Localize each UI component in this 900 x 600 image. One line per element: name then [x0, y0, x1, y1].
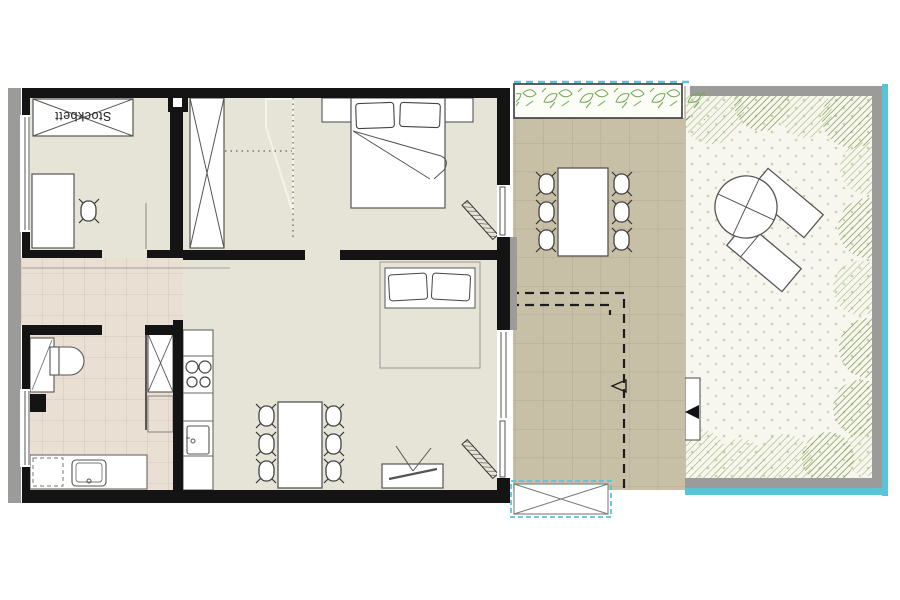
nightstand [322, 98, 351, 122]
chair-icon [256, 432, 276, 456]
garden-wall-bottom [685, 478, 882, 488]
boundary-line-bottom [685, 488, 888, 495]
storage-box [511, 481, 611, 517]
chair-icon [256, 404, 276, 428]
wall-right [497, 88, 510, 185]
double-bed [351, 98, 446, 208]
terrace-door-living [497, 420, 510, 478]
floor-plan-screenshot: Stockbett [0, 0, 900, 600]
wall-bath-living [173, 320, 183, 490]
washer-slot [33, 458, 63, 486]
nightstand [445, 98, 473, 122]
sofa-cushion [388, 273, 427, 301]
facade-trim-right [510, 237, 517, 330]
wall-left [22, 88, 30, 115]
dining-set [256, 402, 344, 488]
facade-trim-left [8, 88, 21, 503]
sofa-cushion [431, 273, 470, 301]
toilet [50, 347, 84, 375]
garden-wall-top [690, 86, 882, 96]
chair-icon [536, 200, 556, 224]
chair-icon [324, 404, 344, 428]
shaft-opening [173, 98, 182, 107]
chair-icon [612, 228, 632, 252]
dining-table [278, 402, 322, 488]
terrace-door-bedroom [497, 185, 510, 237]
wash-basin [72, 460, 106, 486]
desk [32, 174, 74, 248]
window-kids-room [20, 115, 30, 232]
apartment: Stockbett [8, 88, 517, 503]
kitchen [183, 330, 213, 490]
chair-icon [612, 172, 632, 196]
kitchen-counter [183, 330, 213, 490]
vanity [30, 455, 147, 489]
chair-icon [536, 228, 556, 252]
wall-bottom [22, 490, 510, 503]
terrace-area [510, 84, 705, 517]
chair-icon [324, 432, 344, 456]
bunk-bed: Stockbett [33, 99, 133, 136]
chair-icon [79, 199, 99, 223]
window-bathroom [20, 389, 30, 467]
chair-icon [612, 200, 632, 224]
chair-icon [324, 459, 344, 483]
planter-overgrowth [683, 92, 705, 120]
wall-kids-hall [22, 250, 102, 258]
boundary-line-right [882, 84, 888, 496]
pillow [356, 102, 395, 128]
garden-gate [685, 378, 700, 440]
planter-box [514, 84, 705, 120]
wall-kids-bedroom [170, 98, 183, 250]
wardrobe [190, 98, 224, 248]
window-living-room [497, 330, 510, 420]
pillow [400, 102, 441, 127]
terrace-dining-set [536, 168, 632, 256]
chair-icon [256, 459, 276, 483]
terrace-table [558, 168, 608, 256]
wall-stub-shower [30, 394, 46, 412]
bunk-bed-label: Stockbett [55, 109, 112, 123]
kitchen-sink [186, 426, 209, 454]
planter-plants [516, 86, 680, 116]
wall-bedroom-living [183, 250, 305, 260]
wall-bathroom-top [28, 325, 102, 335]
floor-plan: Stockbett [0, 0, 900, 600]
garden-wall-right [872, 86, 882, 478]
wall-top [22, 88, 510, 98]
chair-icon [536, 172, 556, 196]
